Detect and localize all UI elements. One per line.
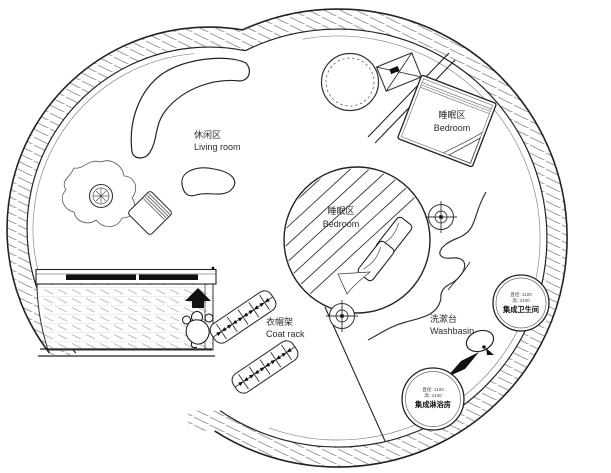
sliding-door-panel-2 (139, 275, 198, 281)
living-room-label-en: Living room (194, 142, 241, 152)
round-table (322, 54, 379, 111)
shower-pod: 直径: 1100 高: 2100 集成淋浴房 (402, 368, 464, 430)
bathroom-pod-name: 集成卫生间 (502, 305, 539, 314)
shower-pod-height: 高: 2100 (424, 392, 442, 399)
living-room-label-zh: 休闲区 (194, 129, 221, 140)
floor-plan-page: 直径: 1100 高: 2100 集成卫生间 直径: 1100 高: 2100 … (0, 0, 611, 473)
coat-rack-label-zh: 衣帽架 (266, 316, 293, 327)
bathroom-pod-height: 高: 2100 (512, 297, 530, 304)
sliding-door-panel-1 (66, 275, 136, 281)
shower-pod-diameter: 直径: 1100 (422, 386, 444, 392)
washbasin-label-en: Washbasin (430, 326, 474, 336)
washbasin-label-zh: 洗漱台 (430, 313, 457, 324)
bedroom-center-label-zh: 睡眠区 (327, 205, 354, 216)
shower-pod-name: 集成淋浴房 (414, 400, 451, 409)
bathroom-pod: 直径: 1100 高: 2100 集成卫生间 (493, 275, 549, 331)
sliding-door-wall (36, 270, 216, 285)
bathroom-pod-diameter: 直径: 1100 (510, 291, 532, 297)
bedroom-center-label-en: Bedroom (323, 219, 360, 229)
bedroom-upper-label-en: Bedroom (434, 123, 471, 133)
floor-plan-drawing: 直径: 1100 高: 2100 集成卫生间 直径: 1100 高: 2100 … (0, 0, 611, 473)
exterior-blank (0, 355, 188, 473)
coat-rack-label-en: Coat rack (266, 329, 305, 339)
reference-dot (212, 267, 215, 270)
bedroom-upper-label-zh: 睡眠区 (438, 109, 465, 120)
